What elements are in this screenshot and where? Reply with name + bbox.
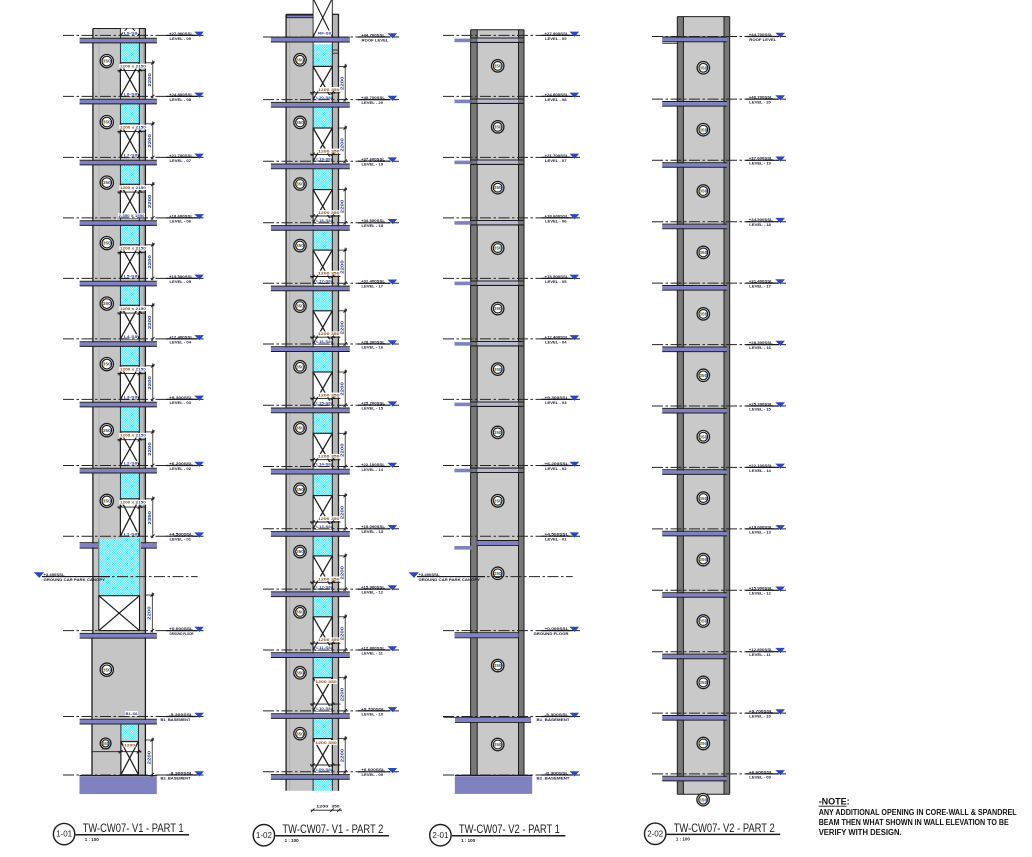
svg-text:LEVEL - 12: LEVEL - 12 [362, 590, 384, 595]
svg-text:LEVEL - 14: LEVEL - 14 [749, 468, 771, 473]
svg-text:LEVEL - 03: LEVEL - 03 [170, 400, 192, 405]
svg-text:B1_BASEMENT: B1_BASEMENT [537, 717, 571, 722]
svg-text:350: 350 [296, 243, 304, 248]
svg-text:2200: 2200 [340, 748, 345, 762]
svg-text:350: 350 [103, 180, 112, 185]
svg-text:350: 350 [296, 57, 304, 62]
svg-text:1200 350: 1200 350 [318, 455, 340, 459]
svg-text:350: 350 [103, 428, 112, 433]
svg-text:LEVEL - 17: LEVEL - 17 [362, 284, 384, 289]
svg-text:2200: 2200 [340, 76, 345, 90]
svg-text:-NOTE:: -NOTE: [819, 797, 850, 807]
svg-text:1200 x 2150: 1200 x 2150 [120, 434, 146, 438]
svg-text:350: 350 [296, 670, 304, 675]
svg-text:LEVEL - 09: LEVEL - 09 [170, 36, 192, 41]
svg-text:350: 350 [699, 680, 707, 685]
svg-text:LEVEL - 04: LEVEL - 04 [170, 339, 192, 344]
svg-text:RF-S8: RF-S8 [318, 31, 331, 35]
svg-text:2200: 2200 [340, 626, 345, 640]
svg-text:LEVEL - 19: LEVEL - 19 [362, 162, 384, 167]
svg-text:2200: 2200 [147, 376, 152, 390]
svg-text:350: 350 [699, 434, 707, 439]
svg-text:350: 350 [296, 120, 304, 125]
svg-text:1200 x 2150: 1200 x 2150 [120, 501, 146, 505]
svg-text:350: 350 [494, 125, 502, 130]
svg-text:350: 350 [699, 312, 707, 317]
svg-text:LEVEL - 10: LEVEL - 10 [749, 714, 771, 719]
svg-text:350: 350 [494, 246, 502, 251]
svg-text:1200 350: 1200 350 [318, 88, 340, 92]
svg-text:2200: 2200 [147, 73, 152, 87]
svg-text:350: 350 [494, 571, 502, 576]
svg-text:350: 350 [494, 430, 502, 435]
svg-text:1200 350: 1200 350 [318, 393, 340, 397]
svg-text:LEVEL - 05: LEVEL - 05 [545, 279, 567, 284]
svg-text:1200: 1200 [316, 804, 328, 808]
svg-text:GROUND CAR PARK CANOPY: GROUND CAR PARK CANOPY [419, 578, 481, 582]
svg-text:LEVEL - 15: LEVEL - 15 [749, 406, 771, 411]
svg-text:LEVEL - 20: LEVEL - 20 [362, 100, 384, 105]
svg-text:LEVEL - 12: LEVEL - 12 [749, 591, 771, 596]
svg-text:LEVEL - 17: LEVEL - 17 [749, 284, 771, 289]
svg-text:350: 350 [103, 362, 112, 367]
svg-text:350: 350 [103, 499, 112, 504]
svg-text:LEVEL - 08: LEVEL - 08 [170, 97, 192, 102]
svg-text:LEVEL - 02: LEVEL - 02 [170, 466, 192, 471]
svg-text:TW-CW07- V2 - PART 2: TW-CW07- V2 - PART 2 [674, 821, 775, 835]
svg-text:2-02: 2-02 [647, 829, 664, 838]
svg-text:LEVEL - 01: LEVEL - 01 [170, 537, 192, 542]
svg-text:350: 350 [296, 487, 304, 492]
svg-text:350: 350 [494, 185, 502, 190]
svg-text:1200 350: 1200 350 [315, 741, 337, 745]
svg-text:350: 350 [699, 797, 707, 802]
svg-text:ROOF LEVEL: ROOF LEVEL [749, 37, 777, 42]
svg-text:350: 350 [103, 120, 112, 125]
svg-text:LEVEL - 18: LEVEL - 18 [749, 222, 771, 227]
svg-text:LEVEL - 07: LEVEL - 07 [170, 158, 192, 163]
svg-text:LEVEL - 01: LEVEL - 01 [545, 537, 567, 542]
svg-text:350: 350 [494, 367, 502, 372]
svg-text:2200: 2200 [340, 260, 345, 274]
svg-text:2200: 2200 [340, 320, 345, 334]
svg-text:+3.400SSL: +3.400SSL [419, 573, 441, 577]
svg-text:350: 350 [699, 741, 707, 746]
svg-text:1200 350: 1200 350 [315, 680, 337, 684]
svg-text:1200 350: 1200 350 [318, 149, 340, 153]
svg-text:+3.400SSL: +3.400SSL [44, 573, 66, 577]
svg-text:1200 x 2150: 1200 x 2150 [120, 186, 146, 190]
svg-text:2200: 2200 [147, 606, 152, 620]
svg-text:LEVEL - 03: LEVEL - 03 [545, 400, 567, 405]
svg-text:1200 x 2150: 1200 x 2150 [120, 65, 146, 69]
svg-text:1200 x 2150: 1200 x 2150 [120, 126, 146, 130]
svg-text:LEVEL - 16: LEVEL - 16 [362, 344, 384, 349]
svg-text:LEVEL - 08: LEVEL - 08 [545, 97, 567, 102]
svg-text:GROUND FLOOR: GROUND FLOOR [170, 631, 194, 636]
svg-text:350: 350 [699, 619, 707, 624]
svg-text:TW-CW07- V2 - PART 1: TW-CW07- V2 - PART 1 [459, 822, 560, 836]
svg-text:350: 350 [699, 373, 707, 378]
svg-text:B2_BASEMENT: B2_BASEMENT [161, 775, 192, 780]
svg-text:350: 350 [296, 426, 304, 431]
svg-text:2200: 2200 [340, 199, 345, 213]
svg-text:1200 350: 1200 350 [318, 272, 340, 276]
svg-text:350: 350 [103, 241, 112, 246]
svg-text:350: 350 [103, 301, 112, 306]
svg-text:2200: 2200 [147, 442, 152, 456]
svg-text:1 : 100: 1 : 100 [461, 838, 475, 843]
svg-text:2200: 2200 [147, 255, 152, 269]
svg-text:ANY ADDITIONAL OPENING IN CORE: ANY ADDITIONAL OPENING IN CORE-WALL & SP… [819, 807, 1017, 817]
svg-text:LEVEL - 13: LEVEL - 13 [749, 529, 771, 534]
svg-text:350: 350 [699, 496, 707, 501]
svg-text:LEVEL - 07: LEVEL - 07 [545, 158, 567, 163]
svg-text:350: 350 [296, 731, 304, 736]
svg-text:350: 350 [494, 742, 502, 747]
svg-text:GROUND CAR PARK CANOPY: GROUND CAR PARK CANOPY [44, 578, 106, 582]
svg-text:ROOF LEVEL: ROOF LEVEL [362, 37, 390, 42]
svg-text:1 : 100: 1 : 100 [285, 838, 299, 843]
svg-text:LEVEL - 20: LEVEL - 20 [749, 100, 771, 105]
svg-text:2200: 2200 [340, 565, 345, 579]
svg-text:B1-S8: B1-S8 [126, 712, 138, 716]
svg-text:1200 x 2150: 1200 x 2150 [120, 247, 146, 251]
svg-text:LEVEL - 06: LEVEL - 06 [170, 218, 192, 223]
svg-text:1200 350: 1200 350 [318, 638, 340, 642]
svg-text:2200: 2200 [340, 138, 345, 152]
svg-text:TW-CW07- V1 - PART 2: TW-CW07- V1 - PART 2 [282, 822, 383, 836]
svg-text:1200 350: 1200 350 [318, 517, 340, 521]
svg-text:2200: 2200 [340, 443, 345, 457]
svg-text:LEVEL - 19: LEVEL - 19 [749, 161, 771, 166]
svg-text:350: 350 [494, 498, 502, 503]
svg-text:350: 350 [296, 549, 304, 554]
svg-text:LEVEL - 11: LEVEL - 11 [362, 650, 384, 655]
svg-text:350: 350 [103, 59, 112, 64]
svg-text:LEVEL - 02: LEVEL - 02 [545, 466, 567, 471]
svg-text:1200 x 2150: 1200 x 2150 [120, 368, 146, 372]
svg-text:2200: 2200 [340, 505, 345, 519]
svg-text:1 : 100: 1 : 100 [85, 837, 99, 842]
svg-text:2350: 2350 [147, 510, 152, 524]
svg-text:LEVEL - 14: LEVEL - 14 [362, 467, 384, 472]
svg-text:GROUND FLOOR: GROUND FLOOR [534, 631, 569, 636]
svg-text:LEVEL - 09: LEVEL - 09 [749, 774, 771, 779]
svg-text:1 : 100: 1 : 100 [676, 837, 690, 842]
svg-text:350: 350 [296, 364, 304, 369]
svg-text:350: 350 [296, 304, 304, 309]
svg-text:350: 350 [296, 610, 304, 615]
svg-text:2200: 2200 [147, 134, 152, 148]
svg-text:BEAM THEN WHAT SHOWN IN WALL E: BEAM THEN WHAT SHOWN IN WALL ELEVATION T… [819, 817, 1009, 827]
svg-text:350: 350 [102, 741, 109, 746]
svg-text:LEVEL - 11: LEVEL - 11 [749, 652, 771, 657]
svg-text:350: 350 [699, 557, 707, 562]
svg-text:VERIFY WITH DESIGN.: VERIFY WITH DESIGN. [819, 827, 902, 837]
svg-text:LEVEL - 04: LEVEL - 04 [545, 339, 567, 344]
svg-text:2200: 2200 [340, 382, 345, 396]
svg-text:B2_BASEMENT: B2_BASEMENT [537, 775, 571, 780]
svg-text:350: 350 [296, 182, 304, 187]
svg-text:1-02: 1-02 [256, 831, 273, 840]
svg-text:LEVEL - 05: LEVEL - 05 [170, 279, 192, 284]
svg-text:350: 350 [103, 667, 112, 672]
svg-text:350: 350 [332, 804, 340, 808]
svg-text:B1_BASEMENT: B1_BASEMENT [161, 717, 192, 722]
svg-text:2200: 2200 [147, 750, 152, 764]
svg-text:1200 350: 1200 350 [318, 211, 340, 215]
svg-text:LEVEL - 16: LEVEL - 16 [749, 345, 771, 350]
svg-text:2-01: 2-01 [432, 831, 449, 840]
svg-text:350: 350 [494, 306, 502, 311]
svg-text:1200 350: 1200 350 [318, 577, 340, 581]
svg-text:350: 350 [699, 65, 707, 70]
svg-text:350: 350 [494, 64, 502, 69]
svg-text:1-01: 1-01 [56, 830, 73, 839]
svg-text:1200 350: 1200 350 [318, 332, 340, 336]
svg-text:1200 x 2150: 1200 x 2150 [120, 307, 146, 311]
svg-text:350: 350 [699, 189, 707, 194]
svg-text:350: 350 [494, 663, 502, 668]
svg-text:2200: 2200 [147, 194, 152, 208]
svg-text:LEVEL - 13: LEVEL - 13 [362, 529, 384, 534]
svg-text:350: 350 [699, 127, 707, 132]
svg-text:LEVEL - 09: LEVEL - 09 [362, 772, 384, 777]
svg-text:LEVEL - 06: LEVEL - 06 [545, 218, 567, 223]
svg-text:LEVEL - 15: LEVEL - 15 [362, 406, 384, 411]
svg-text:LEVEL - 18: LEVEL - 18 [362, 223, 384, 228]
svg-text:2200: 2200 [340, 687, 345, 701]
svg-text:LEVEL - 10: LEVEL - 10 [362, 711, 384, 716]
svg-text:2200: 2200 [147, 315, 152, 329]
svg-text:TW-CW07- V1 - PART 1: TW-CW07- V1 - PART 1 [83, 821, 184, 835]
svg-text:1200: 1200 [124, 743, 135, 747]
svg-text:350: 350 [699, 250, 707, 255]
svg-text:LEVEL - 09: LEVEL - 09 [545, 36, 567, 41]
